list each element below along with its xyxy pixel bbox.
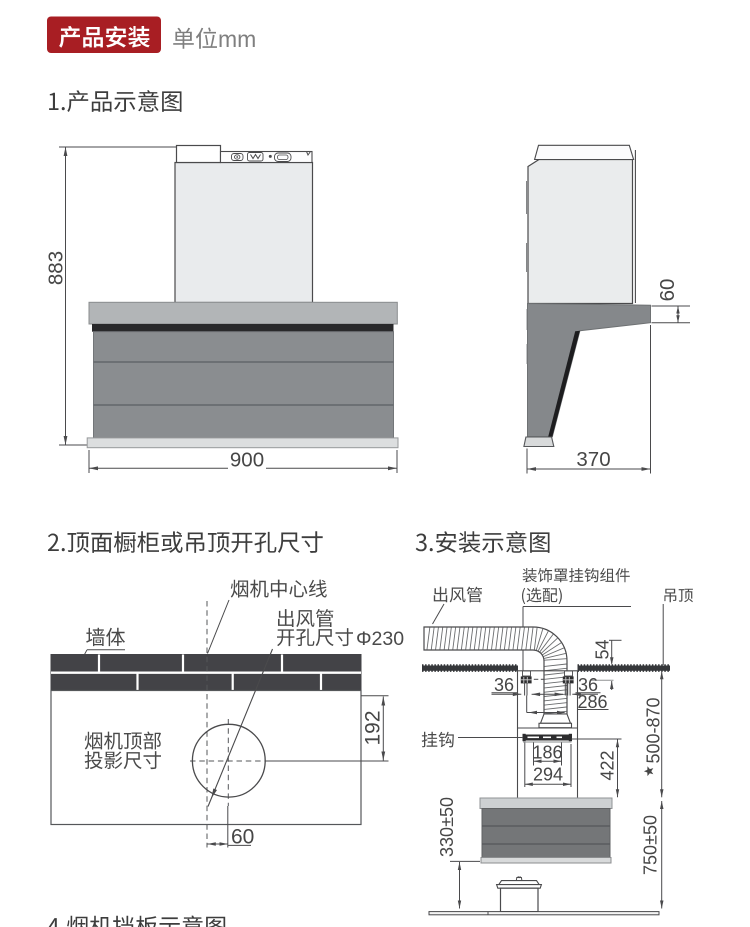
- svg-text:883: 883: [45, 251, 68, 285]
- svg-text:Φ230: Φ230: [356, 628, 404, 650]
- svg-text:60: 60: [231, 826, 254, 849]
- svg-text:mm: mm: [218, 26, 256, 52]
- svg-text:500-870: 500-870: [644, 697, 664, 763]
- svg-text:192: 192: [362, 710, 385, 745]
- svg-text:286: 286: [577, 692, 607, 712]
- svg-text:750±50: 750±50: [641, 815, 661, 875]
- svg-text:54: 54: [593, 639, 613, 659]
- svg-text:370: 370: [576, 448, 610, 471]
- svg-text:60: 60: [656, 279, 679, 302]
- svg-text:900: 900: [230, 449, 264, 472]
- svg-text:422: 422: [598, 750, 618, 780]
- svg-text:330±50: 330±50: [437, 797, 457, 857]
- svg-text:36: 36: [494, 675, 514, 695]
- svg-text:294: 294: [533, 765, 563, 785]
- svg-text:186: 186: [532, 743, 562, 763]
